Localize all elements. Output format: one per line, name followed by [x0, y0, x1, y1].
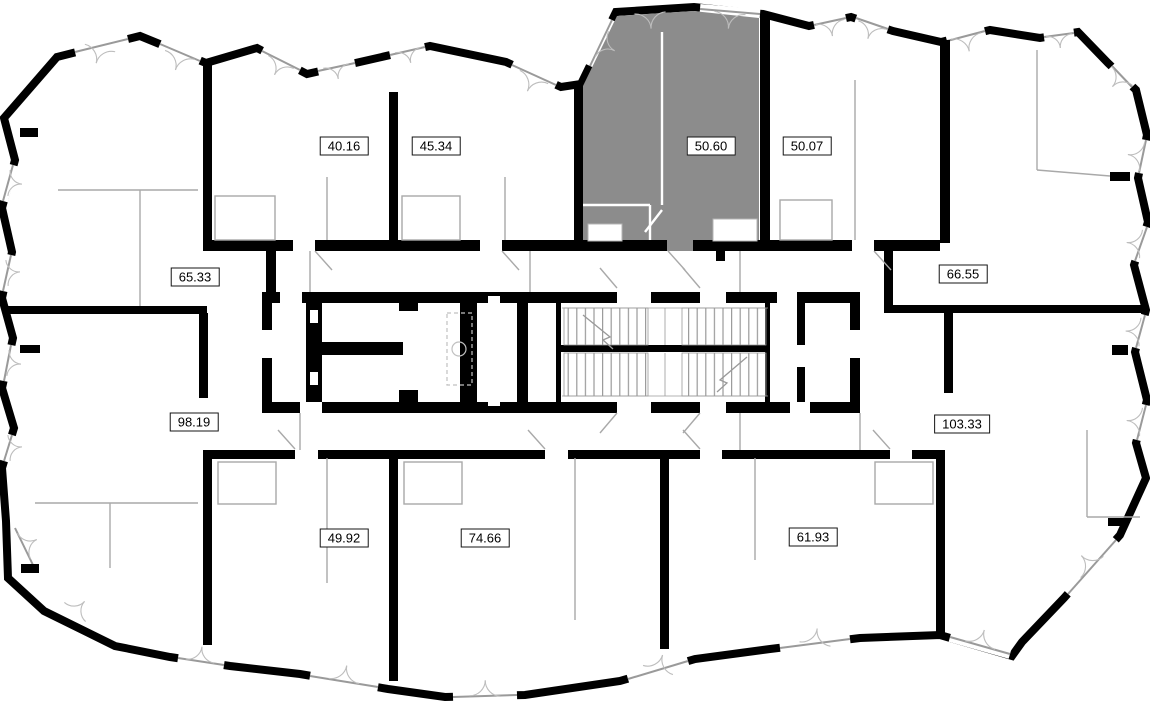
- area-label-49-92[interactable]: 49.92: [320, 529, 369, 548]
- area-label-50-60-selected[interactable]: 50.60: [687, 137, 736, 156]
- floor-plan-canvas: 40.16 45.34 50.60 50.07 65.33 66.55 98.1…: [0, 0, 1150, 701]
- floor-plan-drawing: [0, 0, 1150, 701]
- area-label-66-55[interactable]: 66.55: [939, 265, 988, 284]
- selected-unit-door-gap: [667, 240, 693, 251]
- area-label-65-33[interactable]: 65.33: [171, 268, 220, 287]
- area-label-74-66[interactable]: 74.66: [461, 529, 510, 548]
- area-label-50-07[interactable]: 50.07: [783, 137, 832, 156]
- area-label-98-19[interactable]: 98.19: [170, 413, 219, 432]
- area-label-40-16[interactable]: 40.16: [320, 137, 369, 156]
- area-label-61-93[interactable]: 61.93: [789, 528, 838, 547]
- area-label-45-34[interactable]: 45.34: [412, 137, 461, 156]
- area-label-103-33[interactable]: 103.33: [934, 415, 990, 434]
